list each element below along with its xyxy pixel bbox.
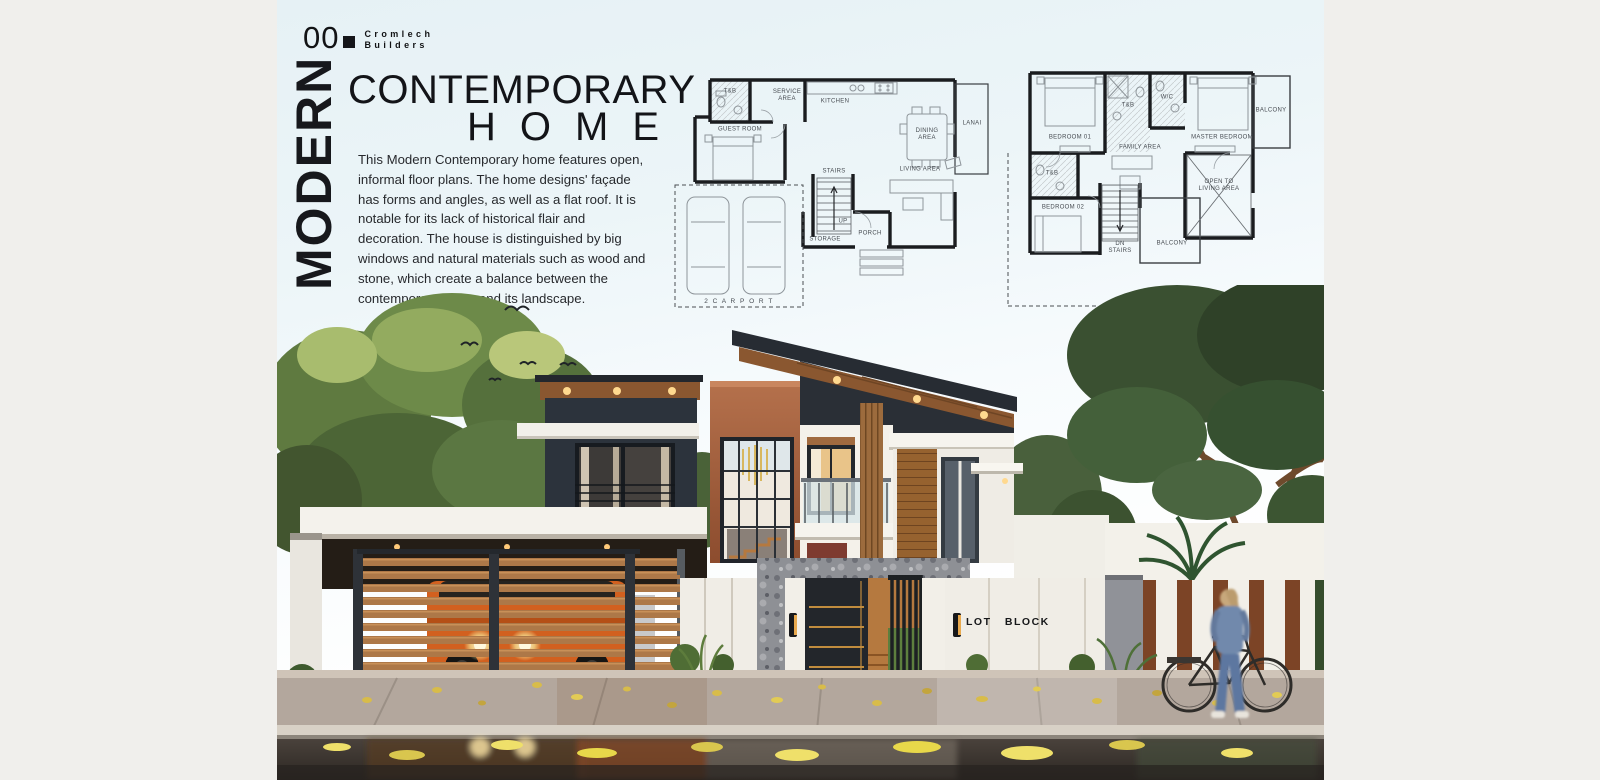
house-render: LOT BLOCK	[277, 285, 1324, 780]
carport-gate	[353, 549, 685, 679]
room-label-family: FAMILY AREA	[1119, 144, 1161, 151]
room-label-bedroom01: BEDROOM 01	[1049, 134, 1091, 141]
brand-line2: Builders	[364, 40, 427, 50]
house-render-drawing	[277, 285, 1324, 780]
room-label-service: SERVICE AREA	[773, 89, 801, 103]
room-label-up: UP	[839, 218, 848, 225]
tower-window	[720, 437, 794, 563]
brand-number: 00	[303, 22, 339, 53]
bar-gate	[888, 575, 922, 678]
room-label-balcony-top: BALCONY	[1256, 107, 1287, 114]
stone-lintel	[757, 558, 970, 578]
entry-door	[805, 578, 868, 682]
sidewalk	[277, 670, 1324, 739]
page-subtitle: HOME	[467, 105, 683, 150]
room-label-porch: PORCH	[858, 230, 881, 237]
room-label-stairs: STAIRS	[822, 168, 845, 175]
brand-square-icon	[343, 36, 355, 48]
room-label-dining: DINING AREA	[916, 128, 939, 142]
room-label-open-to: OPEN TO LIVING AREA	[1199, 179, 1240, 193]
room-label-master: MASTER BEDROOM	[1191, 134, 1253, 141]
room-label-tb-top: T&B	[1122, 102, 1135, 109]
ground-floor-plan: T&B SERVICE AREA KITCHEN DINING AREA LAN…	[655, 62, 990, 312]
brand-name: Cromlech Builders	[364, 29, 433, 52]
room-label-storage: STORAGE	[809, 236, 840, 243]
lot-block-sign: LOT BLOCK	[966, 616, 1050, 628]
room-label-tb: T&B	[724, 88, 737, 95]
room-label-guest: GUEST ROOM	[718, 126, 762, 133]
second-floor-plan: BEDROOM 01 T&B W/C MASTER BEDROOM BALCON…	[1000, 58, 1300, 308]
room-label-living: LIVING AREA	[900, 166, 941, 173]
road	[277, 737, 1324, 780]
room-label-balcony-bottom: BALCONY	[1157, 240, 1188, 247]
left-boundary-wall	[290, 537, 322, 677]
poster: 00 Cromlech Builders MODERN CONTEMPORARY…	[277, 0, 1324, 780]
room-label-bedroom02: BEDROOM 02	[1042, 204, 1084, 211]
wood-screen	[860, 403, 883, 563]
brand-logo: 00 Cromlech Builders	[303, 22, 433, 53]
room-label-tb-left: T&B	[1046, 170, 1059, 177]
room-label-dn-stairs: DN STAIRS	[1108, 241, 1131, 255]
brand-line1: Cromlech	[364, 29, 433, 39]
room-label-wc: W/C	[1161, 94, 1174, 101]
stone-pillar	[757, 578, 785, 680]
room-label-kitchen: KITCHEN	[821, 98, 849, 105]
room-label-lanai: LANAI	[963, 120, 982, 127]
second-floor-plan-drawing	[1000, 58, 1300, 308]
vertical-title: MODERN	[289, 62, 339, 290]
